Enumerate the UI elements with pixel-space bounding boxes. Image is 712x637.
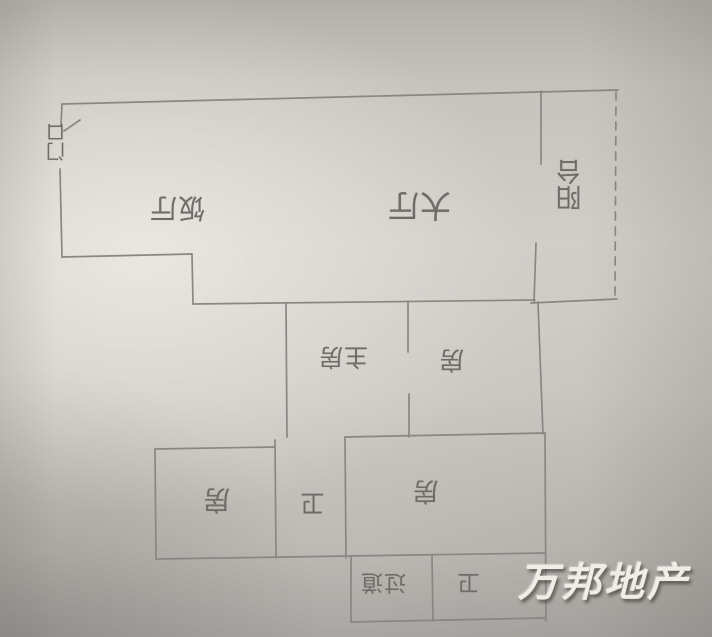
label-bath-middle: 卫 xyxy=(295,490,329,515)
wall-v-left-room xyxy=(155,449,156,559)
label-room-middle: 房 xyxy=(434,346,468,372)
wall-v-bath-right xyxy=(345,437,346,558)
wall-lowband-top-right xyxy=(345,433,545,437)
wall-step-vertical xyxy=(192,254,193,304)
wall-mid-horizontal xyxy=(193,300,535,304)
label-room-lower-left: 房 xyxy=(197,484,235,512)
wall-strip-bottom xyxy=(351,618,545,622)
label-entrance: 门口 xyxy=(48,116,68,168)
wall-dining-bottom xyxy=(62,254,192,257)
wall-balcony-bottom xyxy=(531,299,617,303)
label-master-room: 主房 xyxy=(312,344,374,369)
wall-left-lower xyxy=(60,169,62,257)
label-balcony: 阳台 xyxy=(558,146,585,224)
label-room-lower-right: 房 xyxy=(406,476,444,503)
wall-top xyxy=(62,90,618,104)
watermark: 万邦地产 xyxy=(518,563,712,603)
wall-strip-divider xyxy=(432,556,433,621)
wall-lowband-top-left xyxy=(155,447,275,449)
floorplan-walls xyxy=(0,0,712,637)
label-corridor: 过道 xyxy=(356,570,410,593)
label-dining-room: 饭厅 xyxy=(138,192,216,220)
wall-balcony-dashed xyxy=(615,92,616,296)
wall-balcony-left-lower xyxy=(534,243,536,302)
label-bath-bottom: 卫 xyxy=(452,570,484,593)
wall-midband-right xyxy=(538,302,543,434)
wall-v-bath-left xyxy=(275,440,276,558)
wall-midband-left xyxy=(286,303,287,437)
floorplan-photo: 门口 饭厅 大厅 阳台 主房 房 房 卫 房 过道 卫 万邦地产 xyxy=(0,0,712,637)
label-living-hall: 大厅 xyxy=(378,188,460,221)
